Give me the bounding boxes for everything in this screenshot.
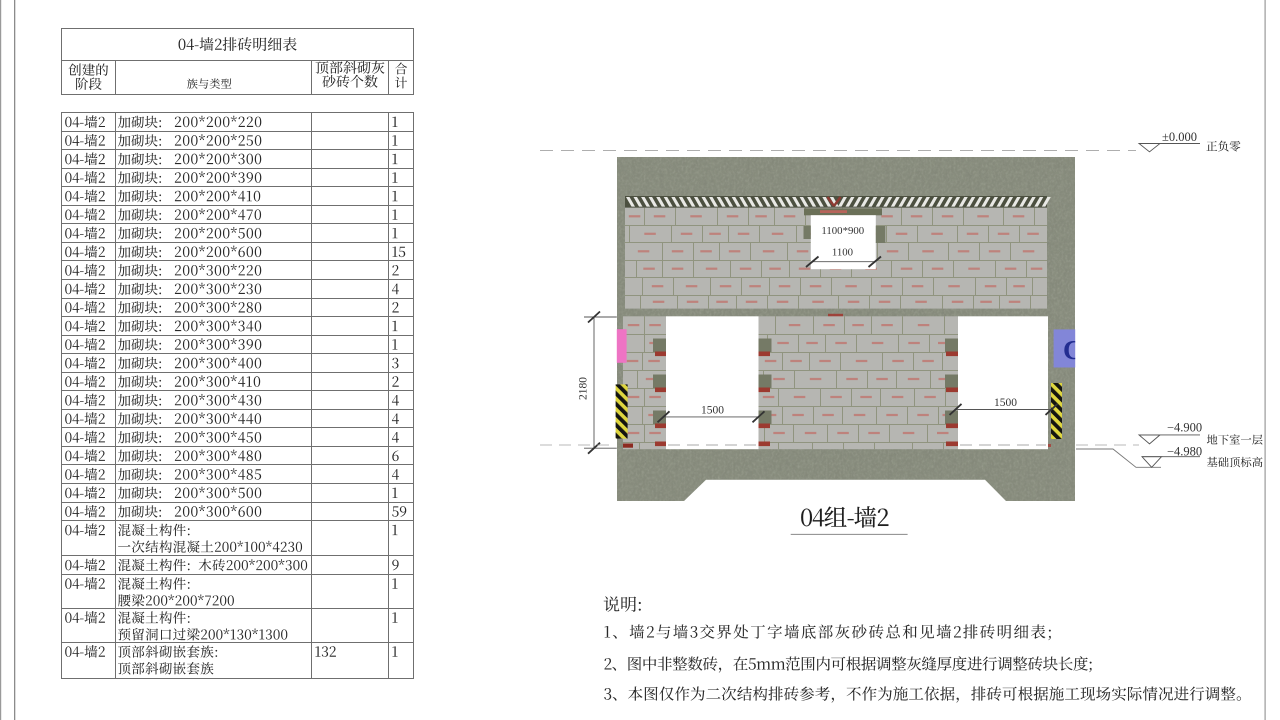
svg-text:−4.980: −4.980	[1167, 445, 1202, 459]
svg-text:2180: 2180	[578, 377, 590, 400]
svg-text:1100: 1100	[832, 246, 853, 258]
svg-text:1100*900: 1100*900	[821, 225, 864, 237]
svg-text:1500: 1500	[994, 397, 1017, 409]
svg-text:1500: 1500	[701, 405, 724, 417]
svg-text:±0.000: ±0.000	[1162, 130, 1197, 144]
svg-text:−4.900: −4.900	[1167, 421, 1202, 435]
